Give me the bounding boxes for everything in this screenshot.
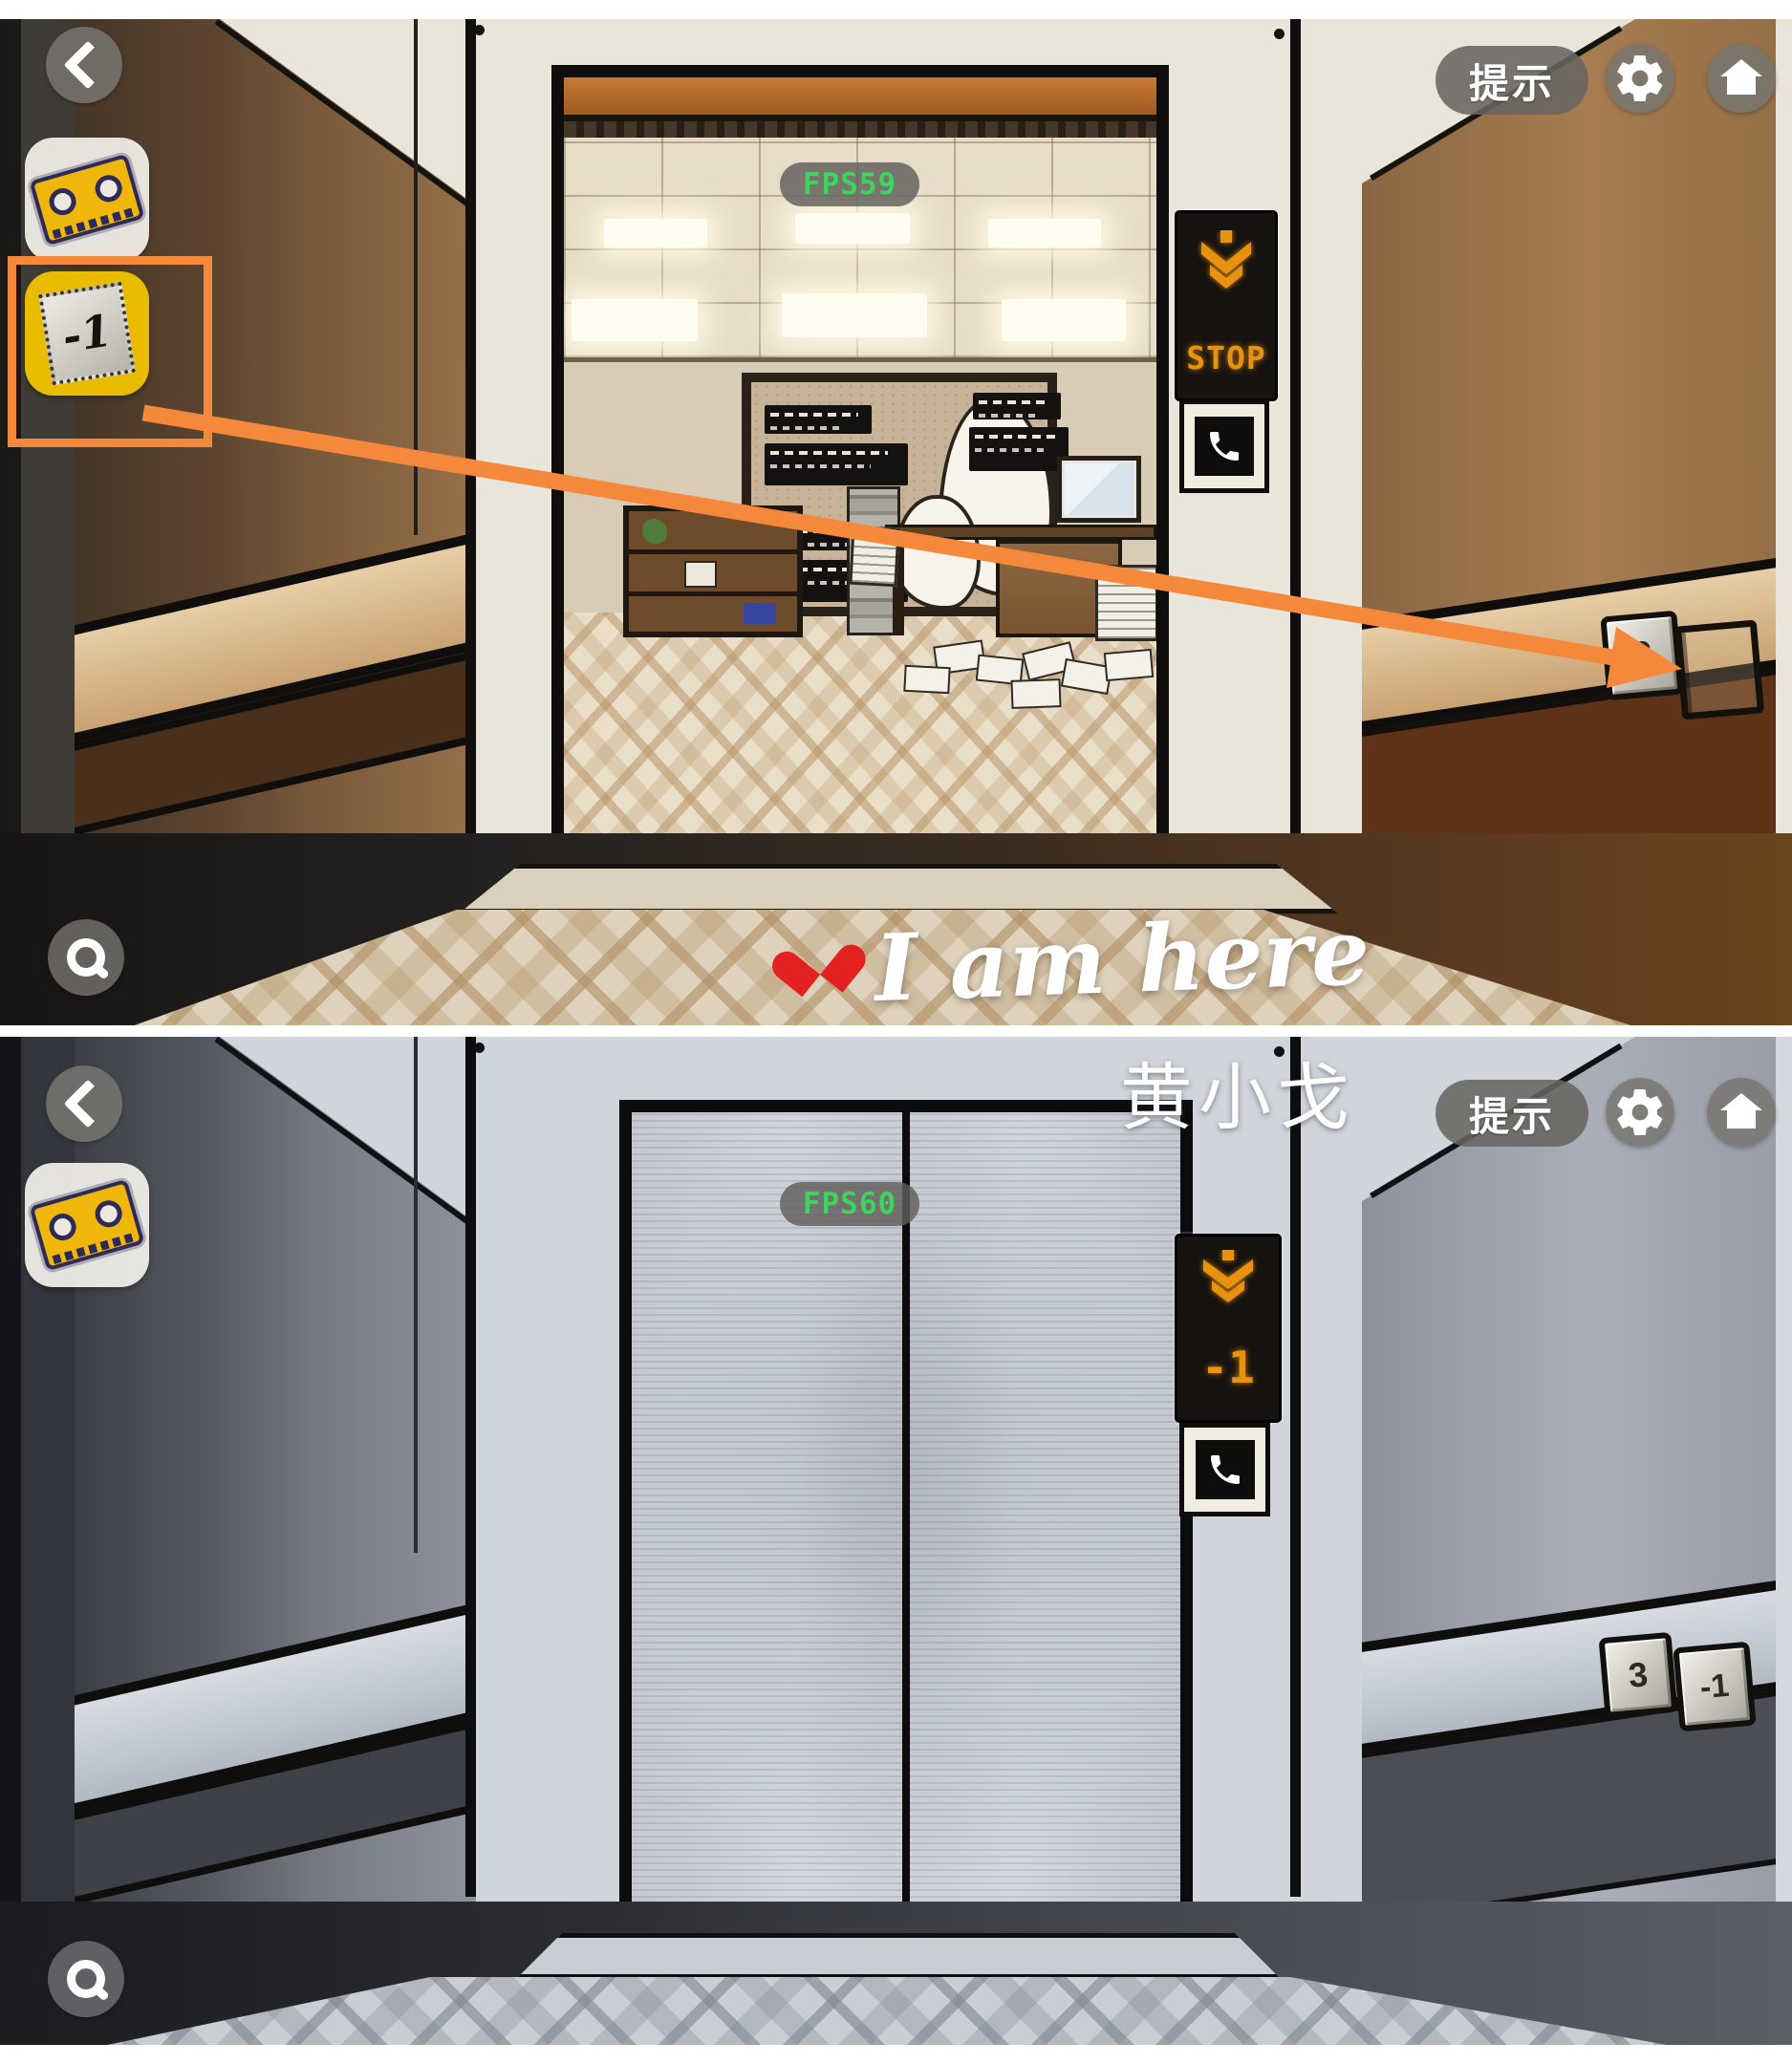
hint-label: 提示 — [1469, 52, 1555, 110]
frame-line-right — [1290, 1037, 1301, 1897]
right-edge-wall — [1776, 1037, 1792, 2045]
door-lintel-trim — [564, 121, 1156, 138]
down-arrow-icon — [1196, 230, 1257, 297]
caption-i-am-here: I am here — [873, 897, 1371, 1022]
plant — [642, 519, 667, 544]
scattered-paper — [903, 665, 950, 694]
magnifier-icon — [67, 938, 105, 977]
hint-button[interactable]: 提示 — [1436, 46, 1588, 115]
game-screenshot-stack: STOP 3 -1 提示 — [0, 0, 1792, 2064]
blue-box — [744, 603, 776, 624]
button-label: 3 — [1627, 1654, 1650, 1696]
wall-plaque — [973, 393, 1061, 419]
ceiling-light — [795, 213, 910, 244]
left-edge-shadow — [0, 1037, 21, 2045]
wall-corner-light — [220, 1037, 476, 1223]
ceiling-light — [988, 219, 1101, 247]
ceiling-light — [572, 299, 698, 341]
wall-plaque — [765, 405, 872, 434]
desk[interactable] — [885, 525, 1156, 540]
wall-corner-light — [220, 19, 476, 205]
frame-line-thin — [414, 1037, 418, 1553]
scattered-paper — [1010, 678, 1061, 709]
computer-monitor[interactable] — [1057, 456, 1141, 523]
screw-dot — [1274, 29, 1285, 39]
door-lintel — [564, 77, 1156, 121]
door-threshold — [516, 1933, 1281, 1979]
magnifier-icon — [67, 1960, 105, 1998]
elevator-button-3[interactable]: 3 — [1600, 611, 1683, 701]
home-icon — [1720, 1093, 1762, 1131]
down-arrow-icon — [1198, 1250, 1259, 1309]
screenshot-bottom-elevator-closed: -1 3 -1 提示 FPS — [0, 1037, 1792, 2045]
display-sign-text: -1 — [1177, 1342, 1279, 1393]
settings-button[interactable] — [1606, 44, 1674, 113]
home-icon — [1720, 59, 1762, 97]
bookshelf[interactable] — [623, 505, 803, 637]
heart-icon — [787, 926, 849, 983]
phone-icon — [1195, 417, 1254, 476]
ceiling-light — [604, 219, 707, 247]
shelf-item — [684, 561, 717, 588]
emergency-phone-button[interactable] — [1179, 399, 1269, 493]
chevron-left-icon — [64, 1080, 113, 1129]
door-center-seam — [902, 1112, 910, 1918]
right-metal-wall — [1362, 1037, 1776, 2045]
frame-line-left — [465, 19, 476, 860]
screenshot-top-elevator-open: STOP 3 -1 提示 — [0, 19, 1792, 1025]
elevator-button-3[interactable]: 3 — [1598, 1632, 1677, 1718]
statue-hand — [895, 495, 981, 610]
magnifier-button[interactable] — [48, 919, 124, 996]
screw-dot — [474, 1043, 485, 1053]
hint-label: 提示 — [1469, 1085, 1555, 1143]
paper-stack — [849, 526, 899, 588]
watermark-name: 黄小戈 — [1120, 1039, 1355, 1144]
gear-icon — [1617, 55, 1663, 101]
home-button[interactable] — [1707, 1078, 1776, 1147]
gear-icon — [1617, 1089, 1663, 1135]
chevron-left-icon — [64, 41, 113, 90]
frame-line-thin — [414, 19, 418, 535]
button-label: -1 — [1698, 1666, 1731, 1706]
elevator-doors-closed[interactable] — [619, 1100, 1193, 1930]
emergency-phone-button[interactable] — [1179, 1423, 1270, 1516]
phone-icon — [1196, 1440, 1255, 1499]
paper-stack — [1095, 565, 1156, 641]
frame-line-right — [1290, 19, 1301, 860]
wall-plaque — [765, 443, 908, 485]
inventory-slot-ticket[interactable] — [25, 1163, 149, 1287]
fps-counter: FPS60 — [780, 1182, 919, 1226]
scattered-paper — [1104, 649, 1154, 681]
inventory-slot-ticket[interactable] — [25, 138, 149, 262]
screw-dot — [474, 25, 485, 35]
wall-plaque — [969, 427, 1069, 471]
frame-line-left — [465, 1037, 476, 1897]
closed-door-panels[interactable] — [632, 1112, 1180, 1918]
home-button[interactable] — [1707, 44, 1776, 113]
button-label: 3 — [1630, 634, 1654, 678]
ticket-item-icon — [29, 154, 144, 247]
elevator-direction-display: STOP — [1175, 210, 1278, 401]
hint-button[interactable]: 提示 — [1436, 1080, 1588, 1147]
ticket-item-icon — [29, 1179, 144, 1272]
back-button[interactable] — [46, 1065, 122, 1142]
ceiling-light — [782, 293, 927, 337]
back-button[interactable] — [46, 27, 122, 103]
elevator-button-empty-slot[interactable] — [1674, 619, 1764, 720]
settings-button[interactable] — [1606, 1078, 1674, 1147]
annotation-highlight-box — [8, 256, 212, 447]
ceiling-light — [1002, 299, 1126, 341]
elevator-direction-display: -1 — [1175, 1234, 1282, 1423]
magnifier-button[interactable] — [48, 1941, 124, 2017]
elevator-button-minus-one[interactable]: -1 — [1673, 1642, 1756, 1732]
display-sign-text: STOP — [1177, 339, 1275, 376]
fps-counter: FPS59 — [780, 162, 919, 206]
